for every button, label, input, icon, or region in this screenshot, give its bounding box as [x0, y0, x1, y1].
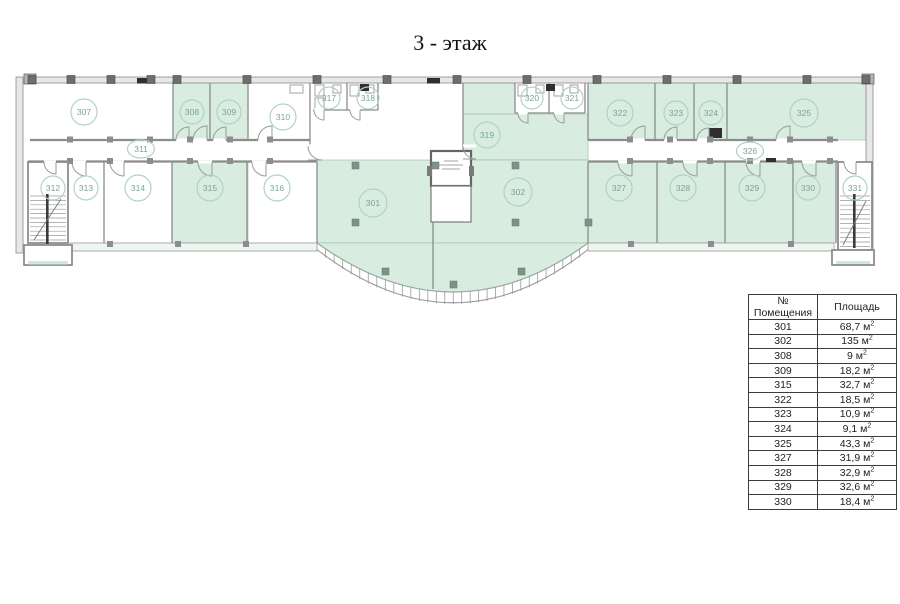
column — [627, 158, 633, 164]
room-329-area — [725, 162, 793, 243]
area-cell: 9,1 м2 — [818, 422, 897, 437]
door-opening — [518, 111, 528, 114]
entrance-step-right — [836, 261, 870, 264]
table-row: 3089 м2 — [749, 349, 897, 364]
table-row: 32543,3 м2 — [749, 436, 897, 451]
area-cell: 9 м2 — [818, 349, 897, 364]
column — [67, 76, 75, 84]
door-opening — [554, 111, 564, 114]
column — [243, 241, 249, 247]
room-label-316: 316 — [270, 183, 284, 193]
room-area-table: № Помещения Площадь 30168,7 м2 302135 м2… — [748, 294, 897, 510]
elevator-jamb-left — [427, 166, 432, 176]
door-opening — [802, 160, 816, 163]
square-superscript: 2 — [870, 379, 874, 386]
door-swing — [308, 146, 322, 160]
column — [512, 219, 519, 226]
table-header-row: № Помещения Площадь — [749, 295, 897, 320]
room-number-cell: 323 — [749, 407, 818, 422]
area-cell: 32,6 м2 — [818, 480, 897, 495]
room-label-329: 329 — [745, 183, 759, 193]
room-label-307: 307 — [77, 107, 91, 117]
room-330-area — [793, 162, 836, 243]
column — [708, 241, 714, 247]
column — [787, 137, 793, 143]
room-number-cell: 301 — [749, 320, 818, 335]
room-number-cell: 329 — [749, 480, 818, 495]
column — [227, 137, 233, 143]
column — [243, 76, 251, 84]
room-label-325: 325 — [797, 108, 811, 118]
square-superscript: 2 — [869, 335, 873, 342]
room-label-301: 301 — [366, 198, 380, 208]
room-label-320: 320 — [525, 93, 539, 103]
elevator-jamb-right — [469, 166, 474, 176]
door-opening — [198, 160, 212, 163]
room-319-area-upper — [463, 83, 515, 114]
column — [707, 158, 713, 164]
column — [518, 268, 525, 275]
column — [453, 76, 461, 84]
column — [667, 158, 673, 164]
door-opening — [72, 160, 86, 163]
door-opening — [463, 144, 476, 147]
column — [107, 241, 113, 247]
room-label-327: 327 — [612, 183, 626, 193]
room-label-326: 326 — [743, 146, 757, 156]
room-number-cell: 325 — [749, 436, 818, 451]
column — [227, 158, 233, 164]
room-number-cell: 322 — [749, 392, 818, 407]
table-row: 32310,9 м2 — [749, 407, 897, 422]
table-row: 33018,4 м2 — [749, 495, 897, 510]
area-cell: 18,2 м2 — [818, 363, 897, 378]
column — [352, 219, 359, 226]
column — [827, 158, 833, 164]
area-cell: 32,9 м2 — [818, 465, 897, 480]
dark-fixture-321 — [546, 84, 555, 91]
table-row: 32832,9 м2 — [749, 465, 897, 480]
column — [313, 76, 321, 84]
room-label-318: 318 — [361, 93, 375, 103]
table-row: 32932,6 м2 — [749, 480, 897, 495]
area-cell: 18,4 м2 — [818, 495, 897, 510]
column — [175, 241, 181, 247]
column — [862, 76, 870, 84]
elevator-lobby-box — [431, 186, 471, 222]
column — [267, 137, 273, 143]
column — [803, 76, 811, 84]
room-number-cell: 302 — [749, 334, 818, 349]
room-label-308: 308 — [185, 107, 199, 117]
column — [107, 158, 113, 164]
area-table: № Помещения Площадь 30168,7 м2 302135 м2… — [748, 294, 897, 510]
column — [67, 137, 73, 143]
door-opening — [844, 160, 856, 163]
door-opening — [350, 108, 360, 111]
column — [147, 76, 155, 84]
west-facade-wall — [16, 77, 23, 253]
room-label-322: 322 — [613, 108, 627, 118]
room-315-area — [172, 162, 248, 243]
table-row: 302135 м2 — [749, 334, 897, 349]
room-label-311: 311 — [134, 144, 148, 154]
door-opening — [314, 108, 324, 111]
room-number-cell: 328 — [749, 465, 818, 480]
room-number-cell: 327 — [749, 451, 818, 466]
room-label-317: 317 — [322, 93, 336, 103]
square-superscript: 2 — [863, 349, 867, 356]
column — [827, 137, 833, 143]
room-327-area — [588, 162, 657, 243]
door-swing — [72, 162, 86, 176]
column — [707, 137, 713, 143]
room-label-312: 312 — [46, 183, 60, 193]
door-opening — [683, 160, 697, 163]
door-opening — [631, 138, 645, 141]
room-number-cell: 330 — [749, 495, 818, 510]
square-superscript: 2 — [870, 320, 874, 327]
room-label-302: 302 — [511, 187, 525, 197]
door-swing — [110, 162, 124, 176]
column — [585, 219, 592, 226]
column — [107, 76, 115, 84]
column — [593, 76, 601, 84]
door-opening — [213, 138, 226, 141]
room-label-309: 309 — [222, 107, 236, 117]
column — [187, 137, 193, 143]
table-row: 31532,7 м2 — [749, 378, 897, 393]
area-cell: 10,9 м2 — [818, 407, 897, 422]
table-row: 30168,7 м2 — [749, 320, 897, 335]
area-cell: 68,7 м2 — [818, 320, 897, 335]
column — [787, 158, 793, 164]
square-superscript: 2 — [870, 495, 874, 502]
column — [147, 158, 153, 164]
column — [523, 76, 531, 84]
table-row: 30918,2 м2 — [749, 363, 897, 378]
column — [107, 137, 113, 143]
square-superscript: 2 — [870, 466, 874, 473]
room-label-315: 315 — [203, 183, 217, 193]
room-label-323: 323 — [669, 108, 683, 118]
column — [747, 158, 753, 164]
column — [450, 281, 457, 288]
column — [667, 137, 673, 143]
column — [627, 137, 633, 143]
wall-vent-center — [427, 78, 440, 84]
square-superscript: 2 — [870, 364, 874, 371]
riser-corridor-326 — [766, 158, 776, 162]
table-row: 32731,9 м2 — [749, 451, 897, 466]
table-row: 32218,5 м2 — [749, 392, 897, 407]
column — [383, 76, 391, 84]
column — [432, 162, 439, 169]
door-swing — [252, 162, 266, 176]
room-label-321: 321 — [565, 93, 579, 103]
room-label-331: 331 — [848, 183, 862, 193]
door-opening — [308, 144, 322, 147]
floor-plan-page: 3 - этаж — [0, 0, 900, 604]
column — [67, 158, 73, 164]
column — [352, 162, 359, 169]
square-superscript: 2 — [870, 481, 874, 488]
room-label-328: 328 — [676, 183, 690, 193]
room-label-319: 319 — [480, 130, 494, 140]
room-label-314: 314 — [131, 183, 145, 193]
entrance-step-left — [28, 261, 68, 265]
room-number-cell: 315 — [749, 378, 818, 393]
square-superscript: 2 — [870, 452, 874, 459]
column — [663, 76, 671, 84]
square-superscript: 2 — [870, 393, 874, 400]
square-superscript: 2 — [870, 408, 874, 415]
room-label-310: 310 — [276, 112, 290, 122]
area-cell: 31,9 м2 — [818, 451, 897, 466]
square-superscript: 2 — [867, 422, 871, 429]
square-superscript: 2 — [870, 437, 874, 444]
room-label-313: 313 — [79, 183, 93, 193]
door-opening — [44, 160, 56, 163]
column — [512, 162, 519, 169]
column — [733, 76, 741, 84]
room-number-cell: 324 — [749, 422, 818, 437]
column — [382, 268, 389, 275]
column — [788, 241, 794, 247]
wall-vent-left — [137, 78, 147, 84]
door-opening — [252, 160, 266, 163]
header-area: Площадь — [818, 295, 897, 320]
table-row: 3249,1 м2 — [749, 422, 897, 437]
stairwell-331 — [832, 162, 874, 265]
area-cell: 18,5 м2 — [818, 392, 897, 407]
room-number-cell: 308 — [749, 349, 818, 364]
elevator-core — [427, 151, 474, 222]
room-label-330: 330 — [801, 183, 815, 193]
room-label-324: 324 — [704, 108, 718, 118]
room-number-cell: 309 — [749, 363, 818, 378]
area-cell: 32,7 м2 — [818, 378, 897, 393]
area-cell: 43,3 м2 — [818, 436, 897, 451]
column — [28, 76, 36, 84]
area-cell: 135 м2 — [818, 334, 897, 349]
column — [173, 76, 181, 84]
column — [187, 158, 193, 164]
column — [267, 158, 273, 164]
column — [628, 241, 634, 247]
header-room-number: № Помещения — [749, 295, 818, 320]
door-opening — [193, 138, 207, 141]
